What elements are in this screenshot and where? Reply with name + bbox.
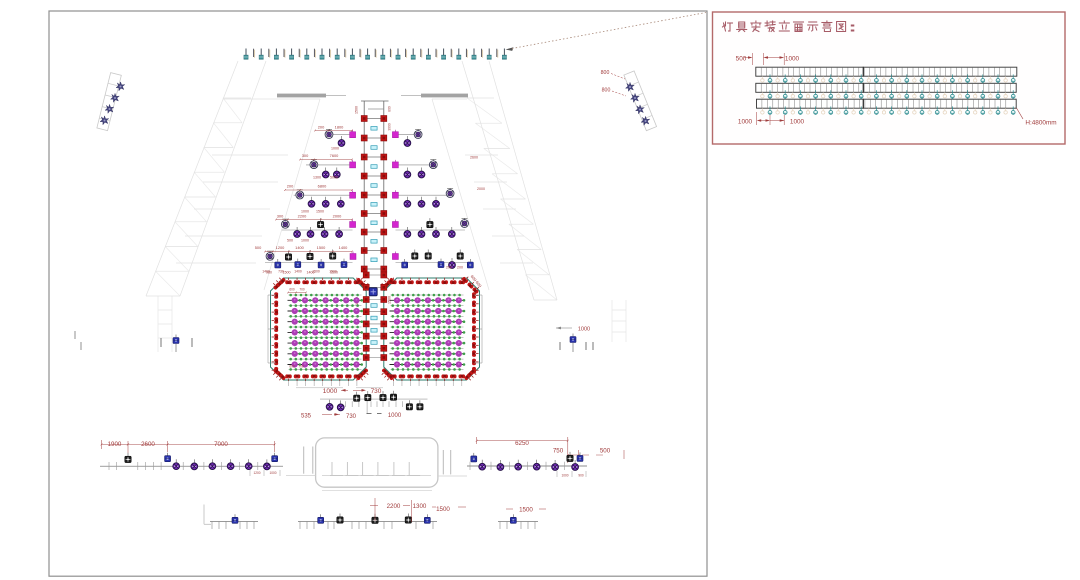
svg-text:2000: 2000 xyxy=(333,214,342,219)
svg-text:7600: 7600 xyxy=(330,153,339,158)
svg-text:730: 730 xyxy=(278,270,284,274)
svg-text:3000: 3000 xyxy=(388,123,392,131)
svg-text:730: 730 xyxy=(346,414,357,420)
svg-text:2000: 2000 xyxy=(477,187,485,191)
svg-text:1900: 1900 xyxy=(108,441,122,448)
svg-text:800: 800 xyxy=(602,88,611,94)
svg-text:1500: 1500 xyxy=(329,270,337,274)
svg-text:1500: 1500 xyxy=(312,270,320,274)
svg-text:800: 800 xyxy=(388,106,392,112)
svg-text:200: 200 xyxy=(287,184,294,189)
svg-text:1000: 1000 xyxy=(269,471,276,475)
svg-text:1000: 1000 xyxy=(790,119,805,126)
svg-text:800: 800 xyxy=(601,70,610,76)
svg-text:1800: 1800 xyxy=(335,125,344,130)
svg-text:600: 600 xyxy=(289,288,295,292)
svg-text:1500: 1500 xyxy=(355,106,359,114)
svg-text:6800: 6800 xyxy=(318,184,327,189)
svg-text:700: 700 xyxy=(299,288,305,292)
svg-text:300: 300 xyxy=(277,214,284,219)
svg-text:1300: 1300 xyxy=(313,176,321,180)
svg-text:600: 600 xyxy=(289,365,295,369)
svg-text:900: 900 xyxy=(578,474,584,478)
svg-text:500: 500 xyxy=(287,239,293,243)
svg-text:1400: 1400 xyxy=(339,245,348,250)
svg-text:1200: 1200 xyxy=(276,245,285,250)
svg-text:6250: 6250 xyxy=(515,440,529,447)
svg-text:1000: 1000 xyxy=(388,413,402,419)
svg-text:1500: 1500 xyxy=(316,210,324,214)
svg-text:2600: 2600 xyxy=(141,441,155,448)
svg-text:500: 500 xyxy=(736,56,747,63)
svg-text:730: 730 xyxy=(371,388,382,395)
svg-text:2600: 2600 xyxy=(470,156,478,160)
svg-text:500: 500 xyxy=(600,448,611,455)
svg-text:H:4800mm: H:4800mm xyxy=(1025,120,1056,127)
svg-text:1500: 1500 xyxy=(317,245,326,250)
svg-text:200: 200 xyxy=(318,125,325,130)
svg-text:500: 500 xyxy=(255,245,262,250)
svg-text:7000: 7000 xyxy=(214,441,228,448)
svg-text:1400: 1400 xyxy=(262,270,270,274)
svg-text:1000: 1000 xyxy=(323,388,338,395)
svg-text:535: 535 xyxy=(301,413,312,419)
svg-text:750: 750 xyxy=(553,448,564,455)
svg-text:2200: 2200 xyxy=(387,503,401,510)
svg-text:2200: 2200 xyxy=(298,214,307,219)
svg-text:1500: 1500 xyxy=(519,507,533,514)
svg-text:1400: 1400 xyxy=(294,270,302,274)
svg-text:1000: 1000 xyxy=(561,474,568,478)
svg-text:200: 200 xyxy=(457,266,463,270)
svg-text:200: 200 xyxy=(446,266,452,270)
svg-text:1400: 1400 xyxy=(295,245,304,250)
svg-text:1300: 1300 xyxy=(413,503,427,510)
svg-text:1000: 1000 xyxy=(578,327,590,333)
svg-text:300: 300 xyxy=(302,153,309,158)
svg-text:1000: 1000 xyxy=(785,56,800,63)
svg-text:700: 700 xyxy=(298,365,304,369)
svg-text:1000: 1000 xyxy=(331,147,339,151)
svg-text:1000: 1000 xyxy=(301,239,309,243)
svg-text:1500: 1500 xyxy=(436,506,450,513)
svg-text:5000: 5000 xyxy=(330,176,338,180)
svg-text:1000: 1000 xyxy=(738,119,753,126)
svg-text:1200: 1200 xyxy=(253,471,260,475)
